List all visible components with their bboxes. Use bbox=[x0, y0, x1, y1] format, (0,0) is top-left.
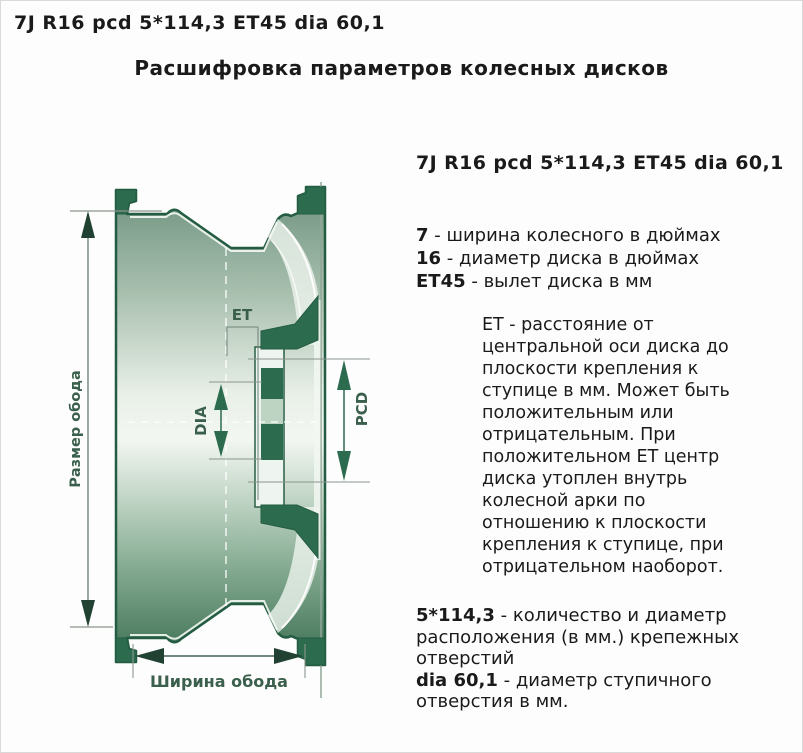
wheel-diagram: Размер обода ET DIA PCD Ширина обода bbox=[38, 172, 413, 712]
param-list: 7 - ширина колесного в дюймах 16 - диаме… bbox=[416, 224, 791, 293]
arrow-down bbox=[81, 600, 95, 627]
arrow-up bbox=[337, 360, 351, 390]
param-line-diameter: 16 - диаметр диска в дюймах bbox=[416, 247, 791, 270]
et-note: ET - расстояние от центральной оси диска… bbox=[482, 314, 754, 578]
param-term: ET45 bbox=[416, 271, 466, 292]
param-line-pcd: 5*114,3 - количество и диаметр расположе… bbox=[416, 605, 766, 670]
arrow-up bbox=[81, 211, 95, 238]
flange-top-right bbox=[298, 187, 325, 214]
rim-size-label: Размер обода bbox=[68, 370, 84, 488]
param-desc: - вылет диска в мм bbox=[471, 271, 652, 292]
spec-header: 7J R16 pcd 5*114,3 ET45 dia 60,1 bbox=[416, 152, 791, 174]
param-desc: - ширина колесного в дюймах bbox=[434, 225, 720, 246]
main-heading: Расшифровка параметров колесных дисков bbox=[0, 56, 803, 80]
param-term: 7 bbox=[416, 225, 429, 246]
arrow-down bbox=[337, 451, 351, 481]
page: { "page": { "top_title": "7J R16 pcd 5*1… bbox=[0, 0, 803, 753]
param-line-width: 7 - ширина колесного в дюймах bbox=[416, 224, 791, 247]
param-term: 16 bbox=[416, 248, 441, 269]
page-title: 7J R16 pcd 5*114,3 ET45 dia 60,1 bbox=[14, 12, 385, 34]
arrow-left bbox=[135, 648, 164, 664]
rim-width-label: Ширина обода bbox=[150, 672, 288, 691]
param-desc: - диаметр диска в дюймах bbox=[447, 248, 699, 269]
param-line-dia: dia 60,1 - диаметр ступичного отверстия … bbox=[416, 670, 766, 713]
explanation-column: 7J R16 pcd 5*114,3 ET45 dia 60,1 7 - шир… bbox=[416, 152, 791, 713]
param-term: dia 60,1 bbox=[416, 670, 498, 691]
dia-label: DIA bbox=[192, 406, 210, 436]
dimension-rim-width: Ширина обода bbox=[133, 644, 305, 691]
et-label: ET bbox=[232, 306, 253, 324]
param-term: 5*114,3 bbox=[416, 605, 495, 626]
param-line-offset: ET45 - вылет диска в мм bbox=[416, 270, 791, 293]
pcd-label: PCD bbox=[353, 392, 371, 426]
bottom-params: 5*114,3 - количество и диаметр расположе… bbox=[416, 605, 766, 713]
flange-bottom-right bbox=[298, 638, 325, 665]
